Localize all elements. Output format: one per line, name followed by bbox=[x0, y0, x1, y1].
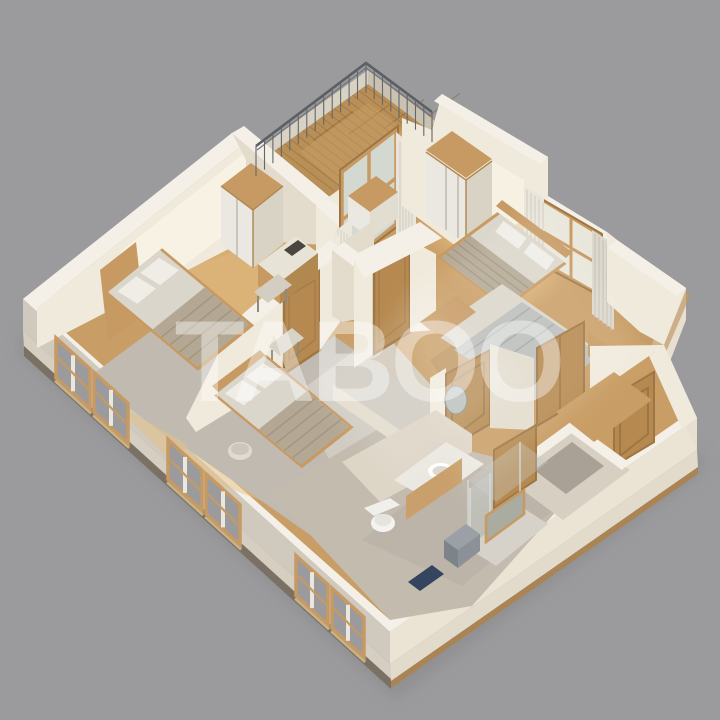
svg-text:TABOO: TABOO bbox=[175, 298, 562, 426]
